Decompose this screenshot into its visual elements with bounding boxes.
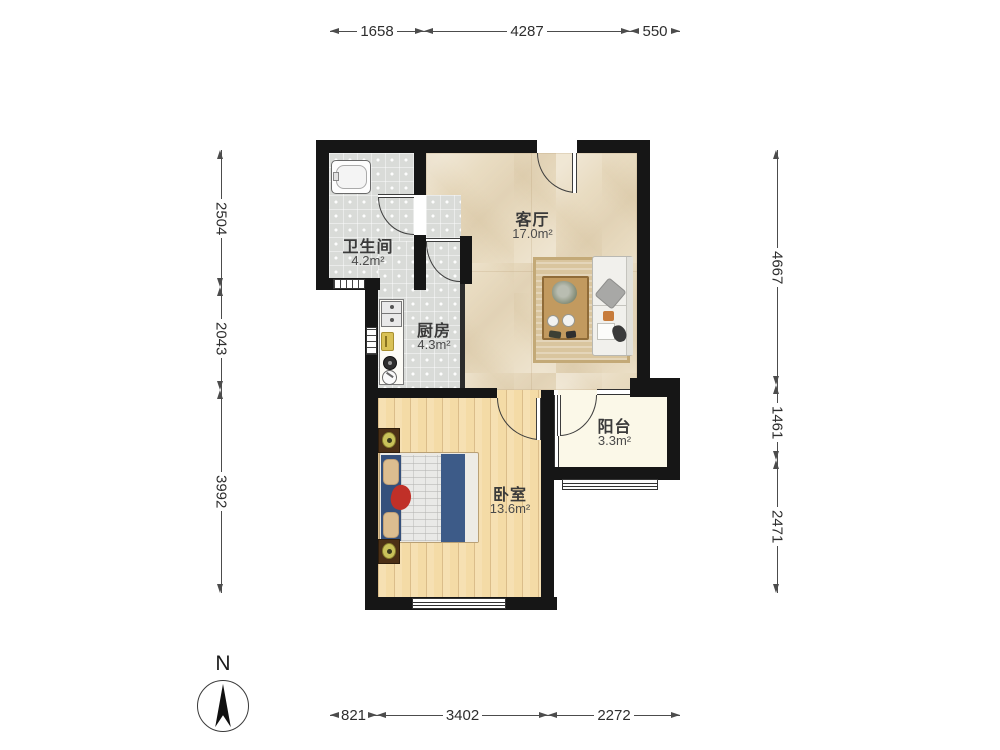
bathroom-door-leaf (378, 194, 414, 198)
bathtub-inner (336, 165, 367, 189)
wall-balcony-right (667, 378, 680, 480)
kitchen-area: 4.3m² (389, 337, 479, 352)
kitchen-window (366, 327, 377, 355)
table-item-1 (549, 330, 562, 339)
wall-top-left (316, 140, 537, 153)
dim-top-2: 4287 (424, 23, 630, 40)
dimensions-top: 1658 4287 550 (330, 22, 680, 40)
dim-top-1: 1658 (330, 23, 424, 40)
dim-right-2: 1461 (769, 385, 786, 460)
dim-bottom-2: 3402 (377, 707, 548, 724)
bathroom-area: 4.2m² (323, 253, 413, 268)
table-plant (552, 281, 577, 304)
wall-living-right (637, 140, 650, 397)
stove-burner-center (388, 361, 392, 365)
dim-left-1: 2504 (213, 150, 230, 287)
table-cup-1 (547, 315, 559, 327)
living-room-area: 17.0m² (490, 226, 575, 241)
bedroom-door-leaf (536, 398, 541, 440)
bedroom-window (412, 598, 506, 609)
kitchen-door-leaf (426, 238, 460, 242)
balcony-area: 3.3m² (572, 433, 657, 448)
wall-bathroom-right-lower (414, 235, 426, 290)
dim-left-3: 3992 (213, 390, 230, 593)
nightstand-2-lamp-center (387, 549, 392, 554)
dim-top-3: 550 (630, 23, 680, 40)
dim-bottom-3: 2272 (548, 707, 680, 724)
dimensions-right: 4667 1461 2471 (768, 150, 786, 593)
bedroom-area: 13.6m² (465, 501, 555, 516)
bathtub-faucet (333, 172, 339, 181)
wall-kitchen-stub (460, 236, 472, 284)
dimensions-bottom: 821 3402 2272 (330, 706, 680, 724)
dimensions-left: 2504 2043 3992 (212, 150, 230, 593)
north-arrow: N (195, 652, 251, 742)
dim-bottom-1: 821 (330, 707, 377, 724)
balcony-window (562, 479, 658, 490)
balcony-top-window (597, 389, 630, 395)
bed-pillow-1 (383, 459, 399, 485)
dim-right-1: 4667 (769, 150, 786, 385)
entry-door-leaf (572, 153, 577, 193)
dim-left-2: 2043 (213, 287, 230, 390)
nightstand-1-lamp-center (387, 438, 392, 443)
bed-runner (441, 454, 465, 542)
north-label: N (195, 652, 251, 676)
sofa-backrest (626, 257, 633, 355)
sink-drain-1 (390, 305, 394, 309)
bathroom-window (333, 279, 365, 289)
wall-bathroom-right-upper (414, 140, 426, 195)
table-cup-2 (562, 314, 575, 327)
dim-right-3: 2471 (769, 460, 786, 593)
wall-bedroom-top (365, 388, 497, 398)
floor-plan: 卫生间 4.2m² 厨房 4.3m² 客厅 17.0m² 卧室 13.6m² 阳… (0, 0, 1000, 750)
sofa-item-orange (603, 311, 614, 321)
kitchen-pot (382, 370, 397, 385)
bed-pillow-2 (383, 512, 399, 538)
balcony-door-leaf (557, 395, 561, 436)
hallway-floor (426, 195, 461, 241)
kitchen-sink-divider (381, 313, 402, 314)
table-item-2 (566, 330, 577, 338)
cutting-board-knife (385, 336, 387, 347)
